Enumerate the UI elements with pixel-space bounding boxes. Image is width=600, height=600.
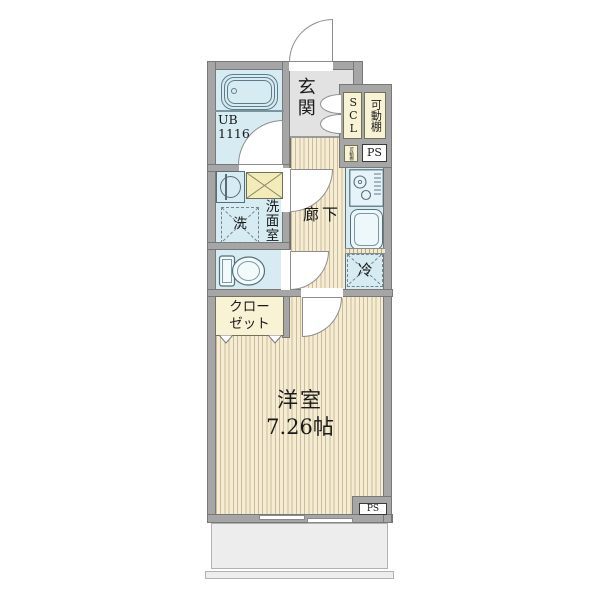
closet-line2: ゼット (229, 316, 270, 333)
hallway-label: 廊下 (303, 206, 341, 224)
movable-shelf-label: 可動棚 (364, 92, 386, 139)
main-room-size: 7.26帖 (215, 414, 385, 441)
washer-label: 洗 (221, 207, 259, 243)
balcony-rail (205, 571, 394, 579)
movable-shelf-small-label: 可動棚 (344, 145, 358, 162)
closet-line1: クロー (229, 299, 270, 316)
unit-bath-label: UB 1116 (218, 113, 250, 142)
window-pane-right (307, 518, 353, 523)
closet-label: クロー ゼット (215, 296, 284, 336)
entrance-step-line (290, 136, 341, 138)
main-room-name: 洋室 (215, 387, 385, 414)
window-pane-left (259, 515, 305, 520)
scl-label: SCL (343, 92, 362, 139)
wall-washroom-toilet (207, 242, 290, 250)
closet-door-pivot-right (268, 335, 282, 344)
unit-bath-line1: UB (218, 113, 250, 127)
refrigerator-label: 冷 (347, 254, 383, 287)
pipe-space-lower-label: PS (359, 503, 387, 515)
unit-bath-line2: 1116 (218, 127, 250, 141)
kitchen-sink-icon (350, 209, 383, 250)
floor-plan: 玄関 廊下 UB 1116 洗面室 洗 冷 SCL 可動棚 可動棚 PS PS … (0, 0, 600, 600)
balcony-deck (211, 523, 388, 569)
pipe-space-upper-label: PS (362, 144, 387, 162)
washbasin-icon (216, 171, 245, 203)
washroom-label: 洗面室 (262, 199, 278, 243)
entrance-door-arc (289, 19, 333, 62)
main-room-label: 洋室 7.26帖 (215, 387, 385, 442)
stove-icon (349, 169, 384, 207)
entrance-label: 玄関 (294, 77, 315, 119)
bathtub-icon (221, 74, 278, 110)
washroom-counter-box (246, 172, 283, 199)
toilet-icon (218, 253, 266, 289)
closet-door-pivot-left (219, 335, 233, 344)
